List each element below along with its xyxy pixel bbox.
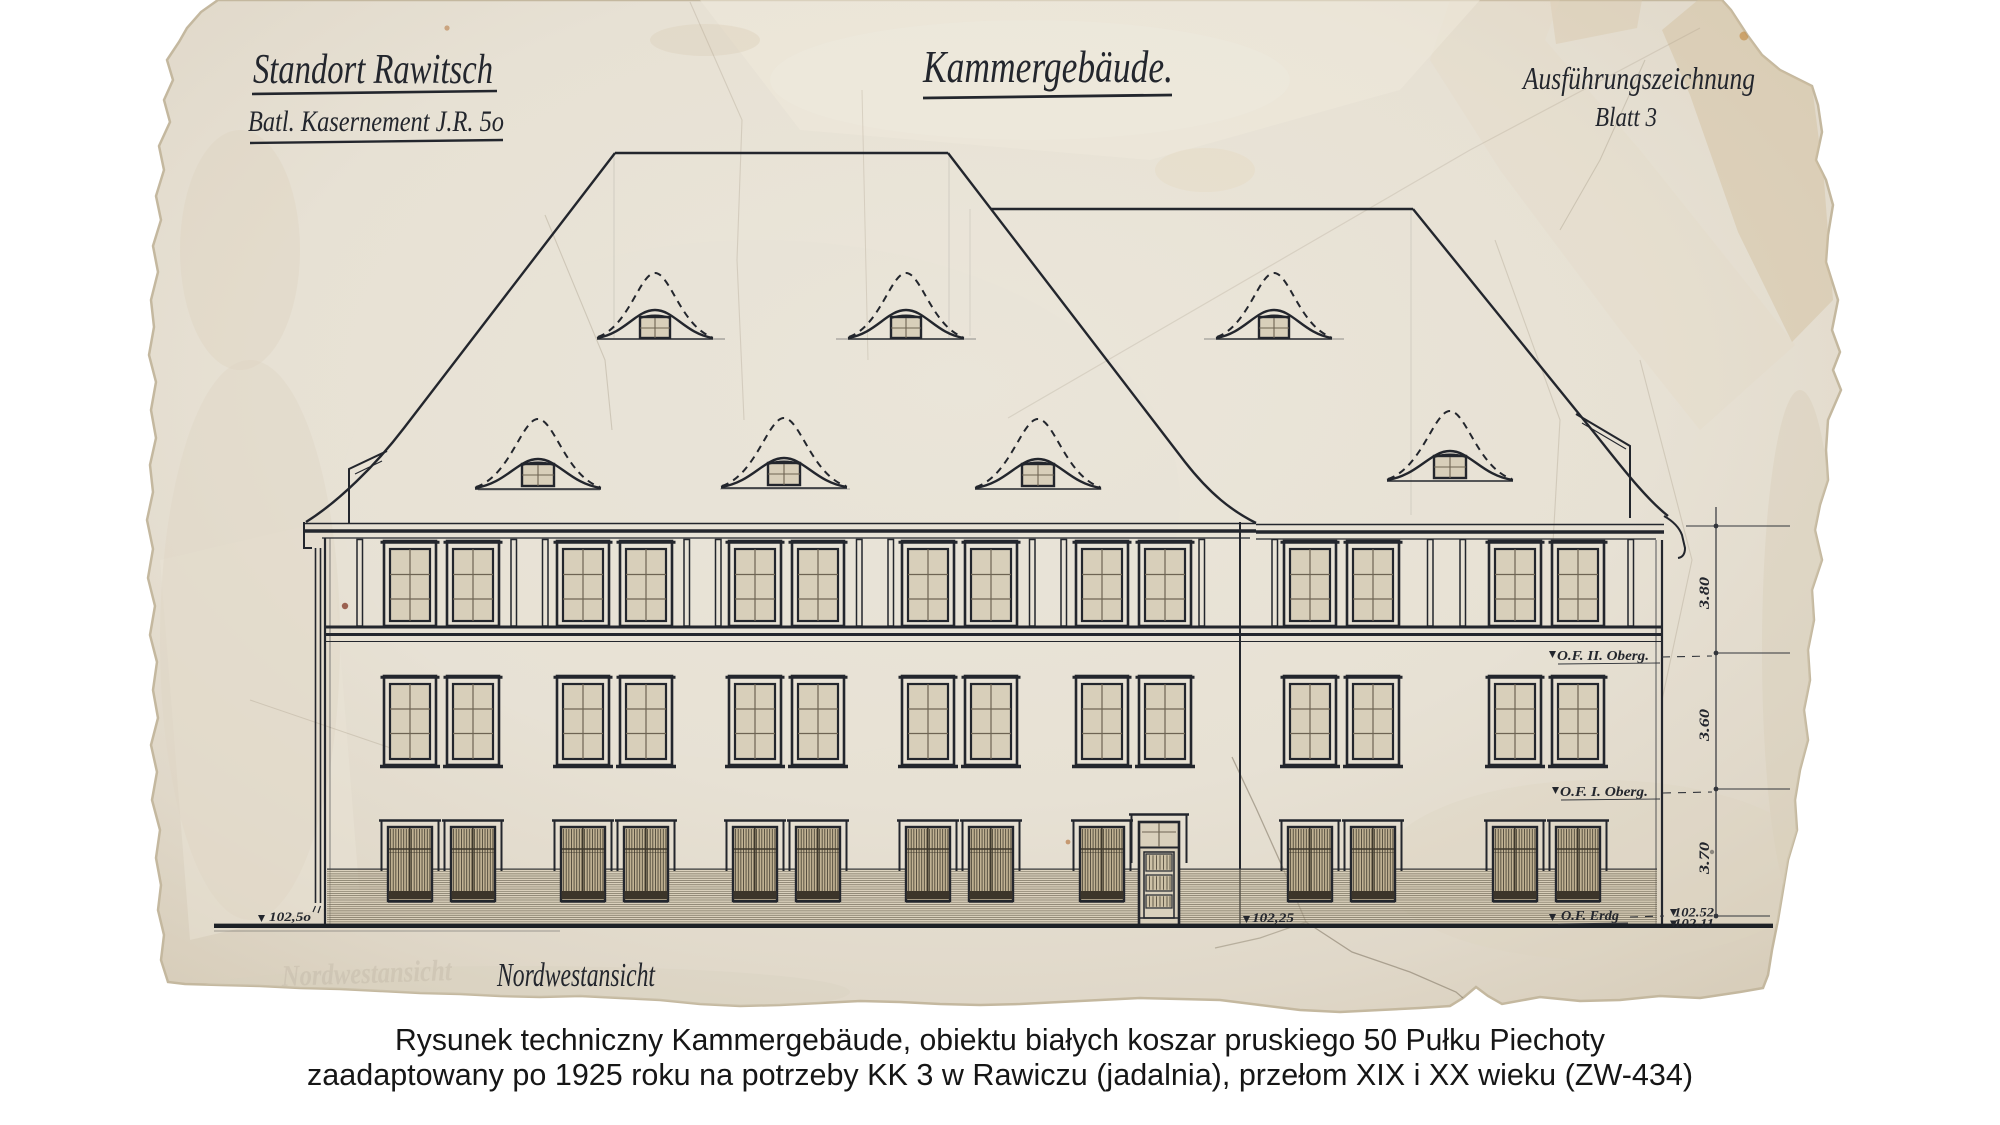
svg-text:Nordwestansicht: Nordwestansicht <box>280 954 453 993</box>
svg-text:Nordwestansicht: Nordwestansicht <box>496 957 656 994</box>
svg-text:102,25: 102,25 <box>1252 910 1295 925</box>
svg-text:zaadaptowany po 1925 roku na p: zaadaptowany po 1925 roku na potrzeby KK… <box>307 1058 1693 1092</box>
svg-text:O.F. I. Oberg.: O.F. I. Oberg. <box>1560 785 1648 800</box>
svg-text:O.F. II. Oberg.: O.F. II. Oberg. <box>1557 649 1649 664</box>
svg-text:3.80: 3.80 <box>1697 576 1713 610</box>
svg-text:102.11: 102.11 <box>1674 916 1714 931</box>
svg-text:Kammergebäude.: Kammergebäude. <box>922 41 1173 92</box>
svg-text:Ausführungszeichnung: Ausführungszeichnung <box>1521 60 1755 96</box>
svg-text:102,5o: 102,5o <box>269 909 312 924</box>
svg-text:Blatt 3: Blatt 3 <box>1595 102 1657 132</box>
svg-text:O.F. Erdg: O.F. Erdg <box>1561 909 1619 924</box>
svg-text:Standort Rawitsch: Standort Rawitsch <box>253 47 493 93</box>
svg-text:3.70: 3.70 <box>1697 841 1713 875</box>
svg-text:Batl. Kasernement J.R. 5o: Batl. Kasernement J.R. 5o <box>248 105 504 138</box>
svg-text:Rysunek techniczny Kammergebäu: Rysunek techniczny Kammergebäude, obiekt… <box>395 1023 1606 1057</box>
svg-text:3.60: 3.60 <box>1697 708 1713 742</box>
